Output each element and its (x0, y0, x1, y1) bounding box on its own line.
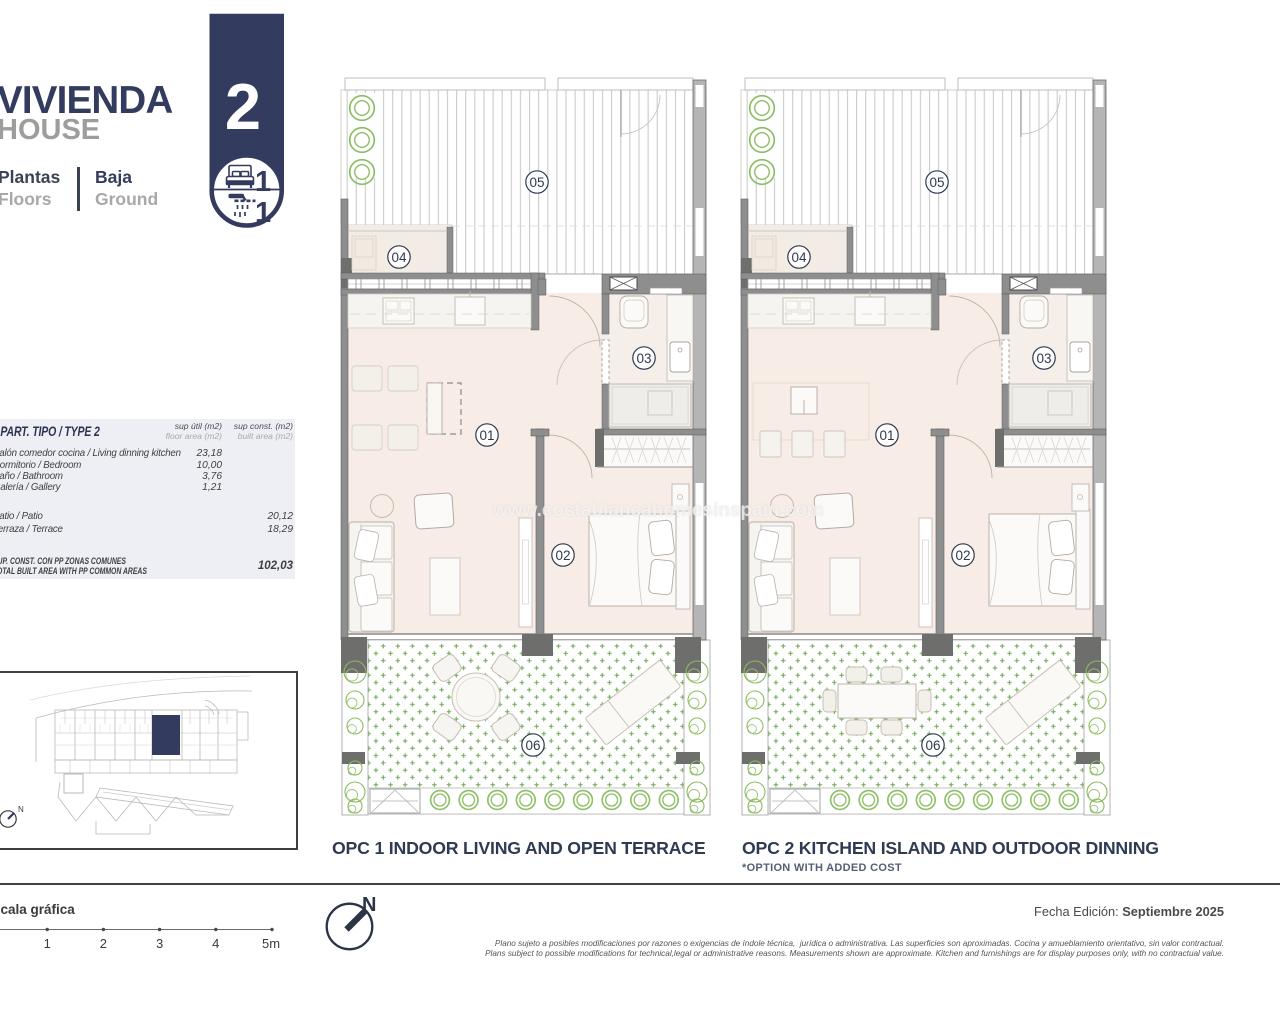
svg-text:2: 2 (225, 70, 261, 143)
svg-text:1: 1 (255, 166, 271, 198)
svg-text:1: 1 (255, 197, 271, 229)
